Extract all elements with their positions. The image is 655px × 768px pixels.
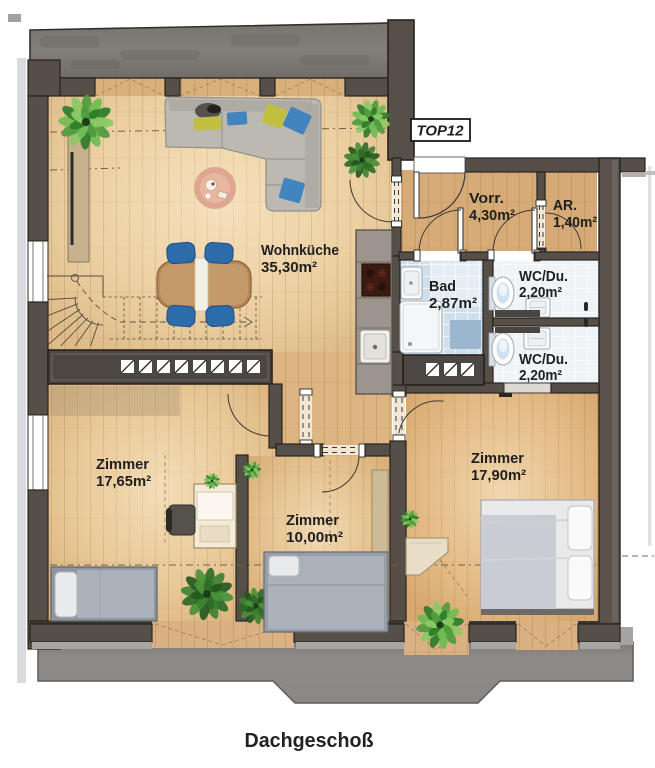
svg-text:Vorr.: Vorr. [469,190,504,207]
svg-text:17,65m²: 17,65m² [96,473,151,490]
svg-text:AR.: AR. [553,197,577,214]
svg-text:WC/Du.: WC/Du. [519,269,568,285]
svg-text:2,87m²: 2,87m² [429,295,477,312]
svg-text:TOP12: TOP12 [417,123,465,140]
svg-text:Wohnküche: Wohnküche [261,242,339,259]
svg-text:Zimmer: Zimmer [96,456,149,473]
svg-text:Zimmer: Zimmer [286,512,339,529]
svg-text:Bad: Bad [429,278,456,295]
svg-text:Zimmer: Zimmer [471,450,524,467]
svg-text:1,40m²: 1,40m² [553,214,597,231]
svg-text:2,20m²: 2,20m² [519,285,562,301]
svg-text:10,00m²: 10,00m² [286,529,343,546]
svg-text:4,30m²: 4,30m² [469,207,515,224]
svg-text:17,90m²: 17,90m² [471,467,526,484]
svg-text:2,20m²: 2,20m² [519,368,562,384]
svg-text:Dachgeschoß: Dachgeschoß [245,729,374,752]
svg-text:35,30m²: 35,30m² [261,259,317,276]
svg-text:WC/Du.: WC/Du. [519,352,568,368]
